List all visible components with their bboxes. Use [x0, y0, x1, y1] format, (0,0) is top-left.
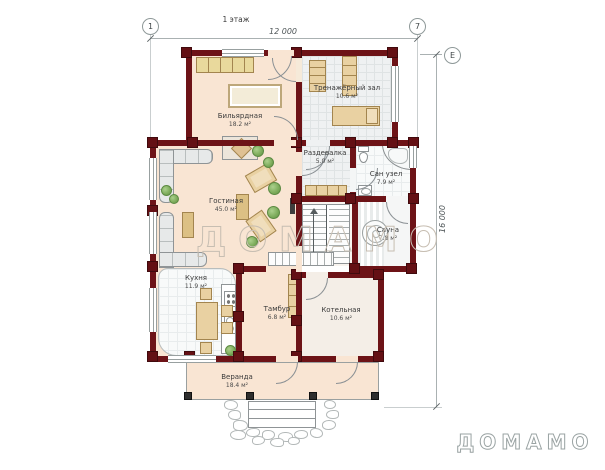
log-end — [349, 263, 360, 274]
room-area: 7.9 м² — [361, 179, 411, 187]
window — [149, 158, 157, 200]
door-opening — [296, 58, 302, 82]
log-end — [147, 261, 158, 272]
veranda-post — [246, 392, 254, 400]
chair — [200, 342, 212, 354]
stone-path — [270, 438, 284, 447]
room-label-living: Гостиная 45.0 м² — [196, 197, 256, 214]
log-end — [233, 263, 244, 274]
log-end — [147, 351, 158, 362]
plant — [268, 182, 281, 195]
room-name: Сан узел — [370, 170, 403, 178]
room-label-boiler: Котельная 10.6 м² — [308, 306, 374, 323]
extension-line — [150, 33, 151, 141]
veranda-post — [309, 392, 317, 400]
grid-marker-7: 7 — [409, 18, 426, 35]
room-label-dressing: Раздевалка 5.0 м² — [295, 149, 355, 166]
room-label-billiard: Бильярдная 18.2 м² — [205, 112, 275, 129]
window — [149, 288, 157, 332]
stone-path — [230, 430, 246, 440]
sink-basin — [361, 188, 371, 195]
plant — [169, 194, 179, 204]
room-name: Кухня — [185, 274, 207, 282]
room-area: 11.9 м² — [170, 283, 222, 291]
room-label-veranda: Веранда 18.4 м² — [205, 373, 269, 390]
plant — [252, 145, 264, 157]
log-end — [373, 269, 384, 280]
stone-path — [326, 410, 339, 419]
log-end — [408, 193, 419, 204]
log-end — [181, 47, 192, 58]
stone-path — [252, 436, 265, 445]
floor-plan-canvas: 1 7 Е 1 этаж 12 000 16 000 — [0, 0, 605, 470]
grid-marker-1: 1 — [142, 18, 159, 35]
plant — [267, 206, 280, 219]
log-end — [373, 351, 384, 362]
room-area: 6.8 м² — [249, 314, 305, 322]
room-name: Веранда — [221, 373, 253, 381]
room-area: 18.4 м² — [205, 382, 269, 390]
room-label-gym: Тренажёрный зал 10.6 м² — [303, 84, 391, 101]
dimension-line-top — [150, 38, 417, 39]
cabinet-row — [196, 57, 254, 73]
window — [391, 66, 399, 122]
door-opening — [274, 140, 296, 146]
stone-path — [322, 420, 336, 430]
room-area: 45.0 м² — [196, 206, 256, 214]
log-end — [387, 137, 398, 148]
entrance-steps — [248, 401, 316, 428]
staircase-arrow-head — [310, 208, 318, 214]
log-end — [147, 137, 158, 148]
stone-path — [324, 400, 336, 409]
room-name: Тамбур — [264, 305, 291, 313]
log-end — [345, 193, 356, 204]
log-end — [406, 263, 417, 274]
room-name: Тренажёрный зал — [314, 84, 380, 92]
log-end — [233, 311, 244, 322]
room-area: 5.0 м² — [295, 158, 355, 166]
log-end — [387, 47, 398, 58]
wall-segment — [186, 50, 192, 146]
window — [168, 355, 216, 363]
dining-table — [196, 302, 218, 340]
chair — [221, 305, 233, 317]
veranda-post — [184, 392, 192, 400]
room-label-tambour: Тамбур 6.8 м² — [249, 305, 305, 322]
room-area: 18.2 м² — [205, 121, 275, 129]
stone-path — [224, 400, 238, 410]
room-name: Котельная — [321, 306, 360, 314]
grid-marker-e: Е — [444, 47, 461, 64]
room-area: 10.6 м² — [308, 315, 374, 323]
room-area: 10.6 м² — [303, 93, 391, 101]
bath-inner — [388, 148, 408, 164]
window — [149, 212, 157, 254]
log-end — [233, 351, 244, 362]
dimension-width-label: 12 000 — [243, 27, 323, 36]
room-label-kitchen: Кухня 11.9 м² — [170, 274, 222, 291]
wall-segment — [378, 266, 384, 362]
brand-logo: ДОМАМО — [450, 430, 600, 454]
window — [409, 146, 417, 168]
room-name: Бильярдная — [218, 112, 263, 120]
log-end — [187, 137, 198, 148]
stone-path — [310, 428, 323, 438]
floor-title: 1 этаж — [196, 15, 276, 24]
watermark: ДОМАМО — [196, 220, 436, 260]
log-end — [345, 137, 356, 148]
side-table — [182, 212, 194, 238]
stone-path — [228, 410, 241, 420]
chair — [221, 322, 233, 334]
room-name: Гостиная — [209, 197, 243, 205]
plant — [263, 157, 274, 168]
billiard-table — [228, 84, 282, 108]
veranda-post — [371, 392, 379, 400]
room-label-bathroom: Сан узел 7.9 м² — [361, 170, 411, 187]
stone-path — [288, 437, 300, 445]
window — [222, 49, 264, 57]
room-name: Раздевалка — [304, 149, 347, 157]
extension-line — [417, 33, 418, 143]
log-end — [291, 193, 302, 204]
extension-line-e — [420, 54, 442, 55]
gym-bench-pillow — [366, 108, 378, 124]
wardrobe-bench — [305, 185, 347, 196]
